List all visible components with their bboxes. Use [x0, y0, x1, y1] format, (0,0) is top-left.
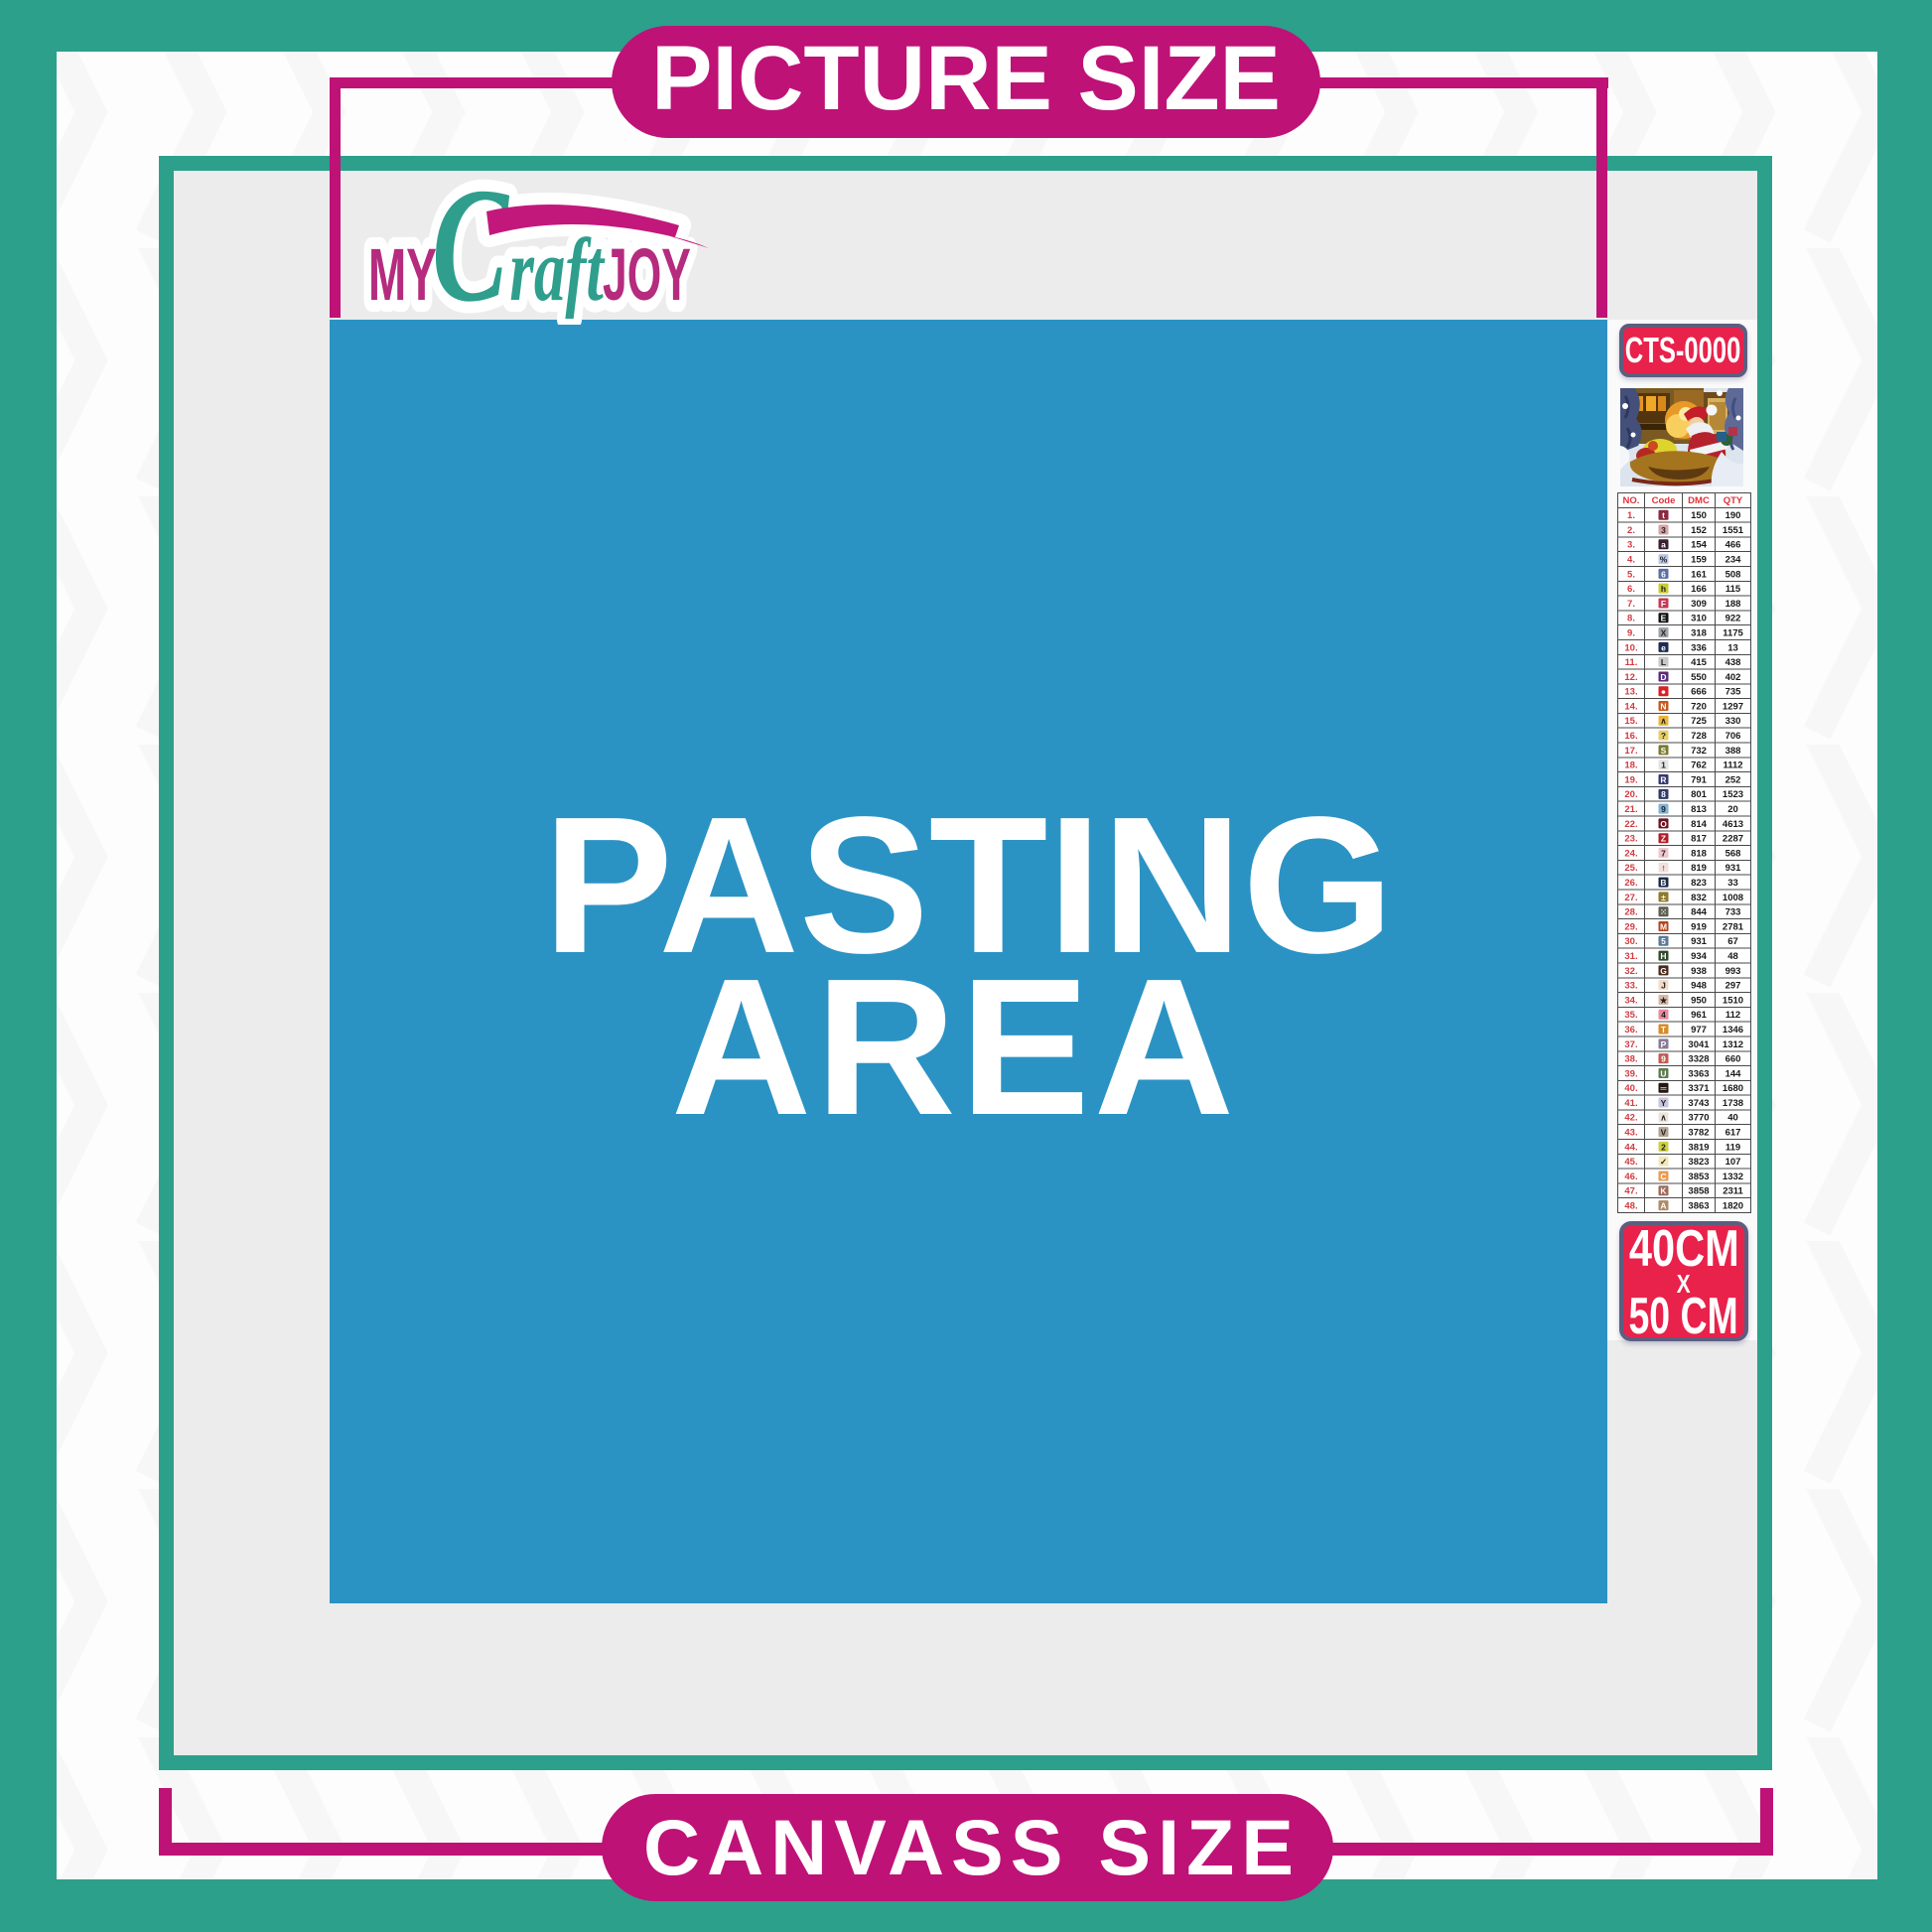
svg-text:●: ●: [1661, 687, 1666, 697]
svg-text:3743: 3743: [1688, 1098, 1709, 1109]
svg-text:112: 112: [1725, 1010, 1740, 1021]
svg-text:4.: 4.: [1627, 554, 1635, 565]
svg-text:29.: 29.: [1624, 921, 1637, 932]
svg-text:C: C: [1660, 1172, 1666, 1181]
svg-text:791: 791: [1691, 774, 1708, 785]
svg-text:5: 5: [1661, 936, 1666, 946]
svg-text:38.: 38.: [1624, 1054, 1637, 1065]
svg-text:a: a: [1661, 540, 1666, 550]
svg-text:4: 4: [1661, 1010, 1666, 1020]
svg-text:37.: 37.: [1624, 1039, 1637, 1050]
svg-text:∧: ∧: [1660, 1113, 1666, 1123]
svg-text:JOY: JOY: [603, 233, 691, 315]
svg-text:1: 1: [1661, 760, 1666, 770]
svg-text:67: 67: [1727, 936, 1738, 947]
svg-text:⁙: ⁙: [1660, 907, 1667, 917]
svg-text:48: 48: [1727, 951, 1738, 962]
svg-text:25.: 25.: [1624, 863, 1637, 874]
svg-text:33.: 33.: [1624, 981, 1637, 992]
svg-text:20.: 20.: [1624, 789, 1637, 800]
svg-text:M: M: [1660, 921, 1667, 931]
svg-text:23.: 23.: [1624, 834, 1637, 845]
svg-text:1175: 1175: [1723, 627, 1743, 638]
svg-text:931: 931: [1725, 863, 1742, 874]
svg-text:152: 152: [1691, 525, 1707, 536]
svg-text:466: 466: [1725, 540, 1741, 551]
svg-text:3782: 3782: [1688, 1128, 1709, 1139]
svg-text:7: 7: [1661, 848, 1666, 858]
svg-text:922: 922: [1725, 614, 1741, 624]
svg-text:2.: 2.: [1627, 525, 1635, 536]
svg-text:3: 3: [1661, 525, 1666, 535]
svg-text:F: F: [1661, 599, 1666, 609]
svg-text:1523: 1523: [1723, 789, 1743, 800]
svg-text:R: R: [1660, 774, 1666, 784]
svg-text:34.: 34.: [1624, 995, 1637, 1006]
svg-text:36.: 36.: [1624, 1025, 1637, 1035]
svg-text:∧: ∧: [1660, 716, 1666, 726]
svg-text:31.: 31.: [1624, 951, 1637, 962]
svg-text:30.: 30.: [1624, 936, 1637, 947]
svg-text:7.: 7.: [1627, 599, 1635, 610]
svg-text:26.: 26.: [1624, 878, 1637, 889]
svg-text:2: 2: [1661, 1142, 1666, 1152]
svg-text:32.: 32.: [1624, 966, 1637, 977]
svg-text:V: V: [1661, 1128, 1667, 1138]
svg-text:310: 310: [1691, 614, 1707, 624]
svg-text:40: 40: [1727, 1113, 1738, 1124]
svg-text:16.: 16.: [1624, 731, 1637, 742]
svg-text:733: 733: [1725, 907, 1741, 918]
svg-text:h: h: [1661, 584, 1666, 594]
svg-text:844: 844: [1691, 907, 1708, 918]
svg-text:1312: 1312: [1723, 1039, 1743, 1050]
svg-text:3371: 3371: [1688, 1083, 1710, 1094]
svg-text:Code: Code: [1652, 495, 1676, 506]
svg-text:438: 438: [1725, 657, 1741, 668]
svg-text:22.: 22.: [1624, 819, 1637, 830]
svg-text:J: J: [1661, 981, 1666, 991]
svg-text:%: %: [1660, 554, 1668, 564]
svg-text:190: 190: [1725, 510, 1741, 521]
svg-text:568: 568: [1725, 848, 1741, 859]
svg-text:832: 832: [1691, 893, 1707, 903]
svg-text:706: 706: [1725, 731, 1741, 742]
svg-text:11.: 11.: [1625, 657, 1638, 668]
svg-text:9: 9: [1661, 804, 1666, 814]
svg-text:666: 666: [1691, 687, 1707, 698]
svg-text:43.: 43.: [1624, 1128, 1637, 1139]
svg-text:1510: 1510: [1723, 995, 1743, 1006]
svg-text:DMC: DMC: [1688, 495, 1710, 506]
svg-text:732: 732: [1691, 746, 1707, 757]
svg-text:813: 813: [1691, 804, 1707, 815]
svg-text:2311: 2311: [1723, 1186, 1743, 1197]
svg-text:1680: 1680: [1723, 1083, 1743, 1094]
svg-text:39.: 39.: [1624, 1068, 1637, 1079]
svg-text:14.: 14.: [1624, 701, 1637, 712]
svg-text:K: K: [1660, 1186, 1667, 1196]
svg-text:±: ±: [1661, 893, 1666, 902]
svg-text:Z: Z: [1661, 834, 1666, 844]
svg-text:═: ═: [1659, 1083, 1667, 1093]
svg-text:t: t: [1662, 510, 1665, 520]
svg-text:144: 144: [1725, 1068, 1742, 1079]
svg-text:C: C: [432, 174, 510, 325]
svg-text:3.: 3.: [1627, 540, 1635, 551]
svg-text:S: S: [1661, 746, 1667, 756]
svg-text:P: P: [1661, 1039, 1667, 1049]
svg-text:154: 154: [1691, 540, 1708, 551]
svg-text:1820: 1820: [1723, 1201, 1743, 1212]
svg-text:A: A: [1660, 1201, 1666, 1211]
svg-text:H: H: [1660, 951, 1666, 961]
svg-text:150: 150: [1691, 510, 1707, 521]
svg-text:27.: 27.: [1624, 893, 1637, 903]
svg-text:QTY: QTY: [1724, 495, 1743, 506]
svg-text:977: 977: [1691, 1025, 1707, 1035]
svg-text:41.: 41.: [1624, 1098, 1637, 1109]
svg-text:?: ?: [1661, 731, 1666, 741]
svg-text:3819: 3819: [1688, 1142, 1709, 1153]
svg-text:660: 660: [1725, 1054, 1741, 1065]
svg-text:13: 13: [1727, 642, 1738, 653]
svg-text:8: 8: [1661, 789, 1666, 799]
svg-text:21.: 21.: [1624, 804, 1637, 815]
svg-text:44.: 44.: [1624, 1142, 1637, 1153]
svg-text:20: 20: [1727, 804, 1738, 815]
svg-text:6: 6: [1661, 569, 1666, 579]
svg-text:1008: 1008: [1723, 893, 1743, 903]
svg-text:e: e: [1661, 642, 1666, 652]
svg-text:9.: 9.: [1627, 627, 1635, 638]
svg-text:1297: 1297: [1723, 701, 1743, 712]
svg-text:19.: 19.: [1624, 774, 1637, 785]
svg-text:3041: 3041: [1688, 1039, 1710, 1050]
svg-text:10.: 10.: [1624, 642, 1637, 653]
svg-text:931: 931: [1691, 936, 1708, 947]
svg-text:12.: 12.: [1624, 672, 1637, 683]
svg-text:O: O: [1660, 819, 1667, 829]
svg-text:NO.: NO.: [1623, 495, 1640, 506]
svg-text:6.: 6.: [1627, 584, 1635, 595]
svg-text:3858: 3858: [1688, 1186, 1709, 1197]
svg-text:28.: 28.: [1624, 907, 1637, 918]
svg-text:402: 402: [1725, 672, 1741, 683]
svg-text:3823: 3823: [1688, 1157, 1709, 1168]
svg-text:950: 950: [1691, 995, 1707, 1006]
svg-text:48.: 48.: [1624, 1201, 1637, 1212]
svg-text:2287: 2287: [1723, 834, 1743, 845]
svg-text:U: U: [1660, 1068, 1666, 1078]
svg-text:762: 762: [1691, 760, 1707, 771]
svg-text:961: 961: [1691, 1010, 1708, 1021]
svg-text:115: 115: [1725, 584, 1741, 595]
svg-text:B: B: [1660, 878, 1666, 888]
svg-text:3863: 3863: [1688, 1201, 1709, 1212]
svg-text:47.: 47.: [1624, 1186, 1637, 1197]
svg-text:8.: 8.: [1627, 614, 1635, 624]
svg-text:5.: 5.: [1627, 569, 1635, 580]
svg-text:550: 550: [1691, 672, 1707, 683]
svg-text:119: 119: [1725, 1142, 1740, 1153]
svg-text:309: 309: [1691, 599, 1707, 610]
svg-text:MY: MY: [368, 234, 437, 317]
svg-text:33: 33: [1727, 878, 1738, 889]
svg-text:735: 735: [1725, 687, 1742, 698]
svg-text:4613: 4613: [1723, 819, 1743, 830]
svg-text:9: 9: [1661, 1054, 1666, 1064]
svg-text:720: 720: [1691, 701, 1707, 712]
svg-text:938: 938: [1691, 966, 1707, 977]
svg-text:N: N: [1660, 701, 1666, 711]
svg-text:46.: 46.: [1624, 1172, 1637, 1182]
svg-text:159: 159: [1691, 554, 1707, 565]
svg-text:2781: 2781: [1723, 921, 1744, 932]
svg-text:188: 188: [1725, 599, 1741, 610]
svg-text:raft: raft: [509, 220, 605, 320]
svg-text:934: 934: [1691, 951, 1708, 962]
svg-text:166: 166: [1691, 584, 1707, 595]
svg-text:817: 817: [1691, 834, 1707, 845]
svg-text:18.: 18.: [1624, 760, 1637, 771]
svg-text:617: 617: [1725, 1128, 1741, 1139]
svg-text:L: L: [1661, 657, 1666, 667]
svg-text:823: 823: [1691, 878, 1707, 889]
svg-text:13.: 13.: [1624, 687, 1637, 698]
svg-text:819: 819: [1691, 863, 1707, 874]
svg-text:✓: ✓: [1660, 1157, 1667, 1167]
svg-text:161: 161: [1691, 569, 1708, 580]
svg-text:948: 948: [1691, 981, 1707, 992]
svg-text:3328: 3328: [1688, 1054, 1709, 1065]
svg-text:17.: 17.: [1624, 746, 1637, 757]
svg-text:X: X: [1661, 627, 1667, 637]
svg-text:919: 919: [1691, 921, 1707, 932]
svg-text:508: 508: [1725, 569, 1741, 580]
svg-text:3363: 3363: [1688, 1068, 1709, 1079]
svg-text:D: D: [1660, 672, 1666, 682]
svg-text:318: 318: [1691, 627, 1707, 638]
svg-text:1551: 1551: [1723, 525, 1744, 536]
svg-text:T: T: [1661, 1025, 1667, 1035]
svg-text:3853: 3853: [1688, 1172, 1709, 1182]
svg-text:252: 252: [1725, 774, 1741, 785]
svg-text:818: 818: [1691, 848, 1707, 859]
svg-text:3770: 3770: [1688, 1113, 1709, 1124]
svg-text:Y: Y: [1661, 1098, 1667, 1108]
svg-text:725: 725: [1691, 716, 1708, 727]
svg-text:814: 814: [1691, 819, 1708, 830]
svg-text:40.: 40.: [1624, 1083, 1637, 1094]
svg-text:330: 330: [1725, 716, 1741, 727]
svg-text:24.: 24.: [1624, 848, 1637, 859]
svg-text:G: G: [1660, 966, 1667, 976]
svg-text:1346: 1346: [1723, 1025, 1743, 1035]
svg-text:42.: 42.: [1624, 1113, 1637, 1124]
svg-text:↑: ↑: [1661, 863, 1665, 873]
svg-text:415: 415: [1691, 657, 1708, 668]
svg-text:728: 728: [1691, 731, 1707, 742]
svg-text:336: 336: [1691, 642, 1707, 653]
svg-text:297: 297: [1725, 981, 1741, 992]
svg-text:1.: 1.: [1627, 510, 1635, 521]
svg-text:1112: 1112: [1723, 760, 1742, 771]
svg-text:1332: 1332: [1723, 1172, 1743, 1182]
svg-text:35.: 35.: [1624, 1010, 1637, 1021]
svg-text:15.: 15.: [1624, 716, 1637, 727]
svg-text:E: E: [1661, 614, 1667, 623]
svg-text:993: 993: [1725, 966, 1741, 977]
svg-text:45.: 45.: [1624, 1157, 1637, 1168]
svg-text:801: 801: [1691, 789, 1708, 800]
svg-text:1738: 1738: [1723, 1098, 1743, 1109]
svg-text:234: 234: [1725, 554, 1742, 565]
svg-text:388: 388: [1725, 746, 1741, 757]
svg-text:107: 107: [1725, 1157, 1741, 1168]
